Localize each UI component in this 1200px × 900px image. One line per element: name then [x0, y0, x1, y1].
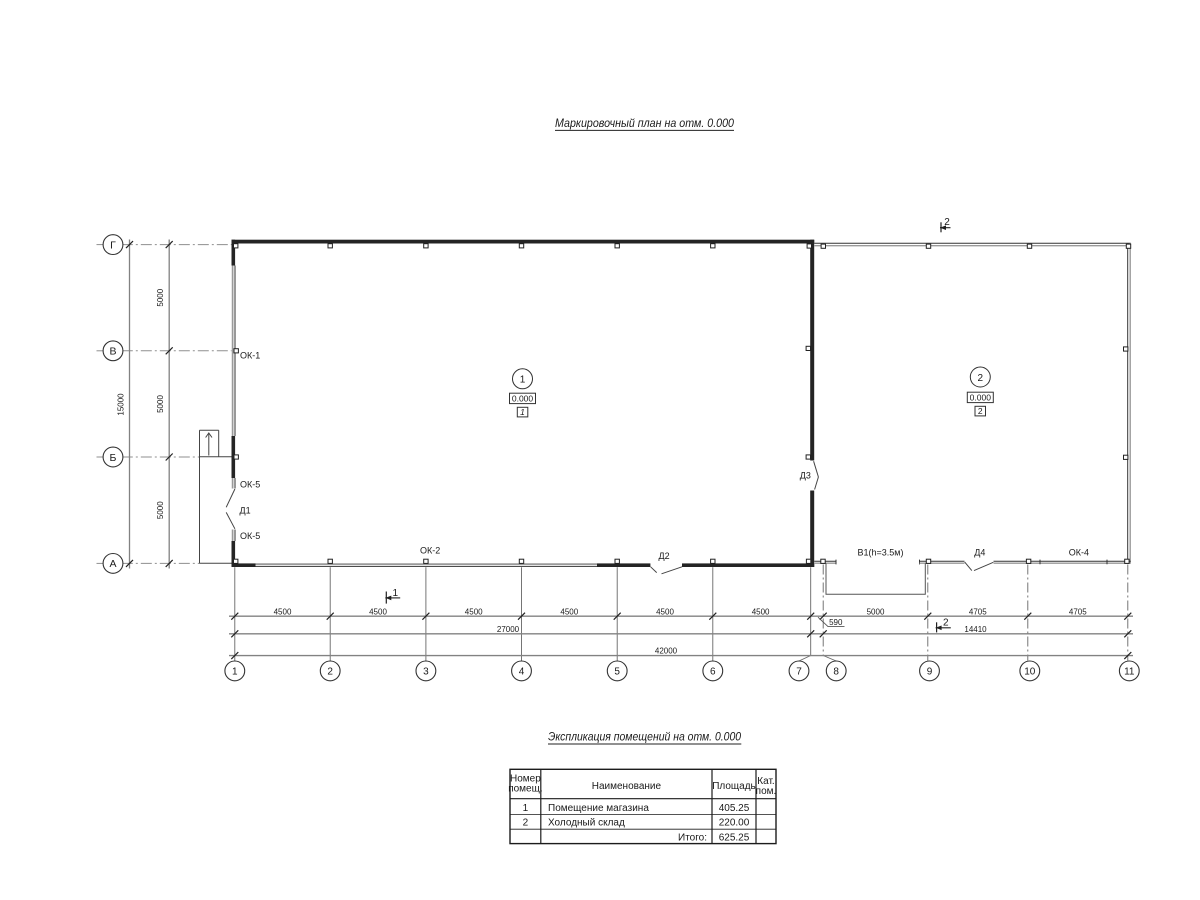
svg-text:9: 9 [927, 667, 933, 678]
svg-text:15000: 15000 [117, 393, 126, 416]
svg-text:В: В [109, 346, 116, 358]
svg-text:Площадь: Площадь [712, 781, 756, 792]
svg-text:Наименование: Наименование [592, 781, 662, 792]
svg-text:2: 2 [944, 217, 950, 228]
svg-text:4500: 4500 [465, 607, 483, 616]
svg-text:2: 2 [327, 667, 333, 678]
svg-text:4500: 4500 [274, 607, 292, 616]
svg-text:ОК-1: ОК-1 [240, 350, 260, 360]
svg-text:ОК-2: ОК-2 [420, 545, 440, 555]
svg-text:42000: 42000 [655, 646, 678, 655]
svg-text:1: 1 [523, 803, 529, 814]
svg-text:7: 7 [796, 667, 802, 678]
svg-text:2: 2 [978, 373, 984, 384]
svg-text:4705: 4705 [1069, 607, 1087, 616]
svg-text:5: 5 [614, 667, 620, 678]
svg-text:625.25: 625.25 [719, 833, 750, 844]
svg-text:4500: 4500 [369, 607, 387, 616]
svg-text:2: 2 [978, 406, 983, 416]
svg-text:220.00: 220.00 [719, 818, 750, 829]
svg-text:4705: 4705 [969, 607, 987, 616]
svg-text:4500: 4500 [560, 607, 578, 616]
svg-text:Д3: Д3 [800, 471, 811, 481]
svg-text:2: 2 [943, 618, 949, 629]
svg-text:5000: 5000 [156, 395, 165, 413]
svg-text:Холодный склад: Холодный склад [548, 818, 625, 829]
svg-text:27000: 27000 [497, 625, 520, 634]
svg-text:ОК-4: ОК-4 [1069, 548, 1089, 558]
svg-text:1: 1 [520, 375, 526, 386]
svg-text:10: 10 [1024, 667, 1036, 678]
svg-text:пом.: пом. [756, 786, 777, 797]
svg-text:0.000: 0.000 [512, 393, 534, 403]
svg-text:11: 11 [1124, 667, 1135, 678]
svg-text:1: 1 [232, 667, 238, 678]
svg-text:1: 1 [393, 588, 399, 599]
svg-text:Г: Г [110, 239, 116, 251]
svg-text:Маркировочный план на отм. 0.: Маркировочный план на отм. 0.000 [555, 118, 735, 130]
svg-text:ОК-5: ОК-5 [240, 480, 260, 490]
svg-text:4500: 4500 [752, 607, 770, 616]
svg-text:Б: Б [110, 452, 117, 464]
svg-text:6: 6 [710, 667, 716, 678]
svg-text:0.000: 0.000 [970, 392, 992, 402]
svg-text:405.25: 405.25 [719, 803, 750, 814]
svg-text:ОК-5: ОК-5 [240, 531, 260, 541]
svg-text:Д4: Д4 [974, 548, 985, 558]
svg-text:14410: 14410 [964, 625, 987, 634]
svg-text:4: 4 [519, 667, 525, 678]
svg-text:5000: 5000 [156, 288, 165, 306]
svg-text:8: 8 [833, 667, 839, 678]
svg-text:Помещение магазина: Помещение магазина [548, 803, 649, 814]
svg-text:Экспликация помещений на отм.: Экспликация помещений на отм. 0.000 [548, 732, 742, 744]
svg-text:4500: 4500 [656, 607, 674, 616]
svg-text:помещ.: помещ. [508, 784, 542, 795]
svg-text:5000: 5000 [867, 607, 885, 616]
svg-text:Итого:: Итого: [678, 833, 707, 844]
svg-text:590: 590 [829, 618, 843, 627]
svg-text:Д1: Д1 [240, 506, 251, 516]
svg-text:3: 3 [423, 667, 429, 678]
svg-text:А: А [109, 558, 116, 570]
svg-text:Д2: Д2 [659, 551, 670, 561]
svg-text:2: 2 [523, 818, 529, 829]
svg-text:1: 1 [520, 407, 525, 417]
svg-text:В1(h=3.5м): В1(h=3.5м) [858, 548, 904, 558]
svg-text:5000: 5000 [156, 501, 165, 519]
